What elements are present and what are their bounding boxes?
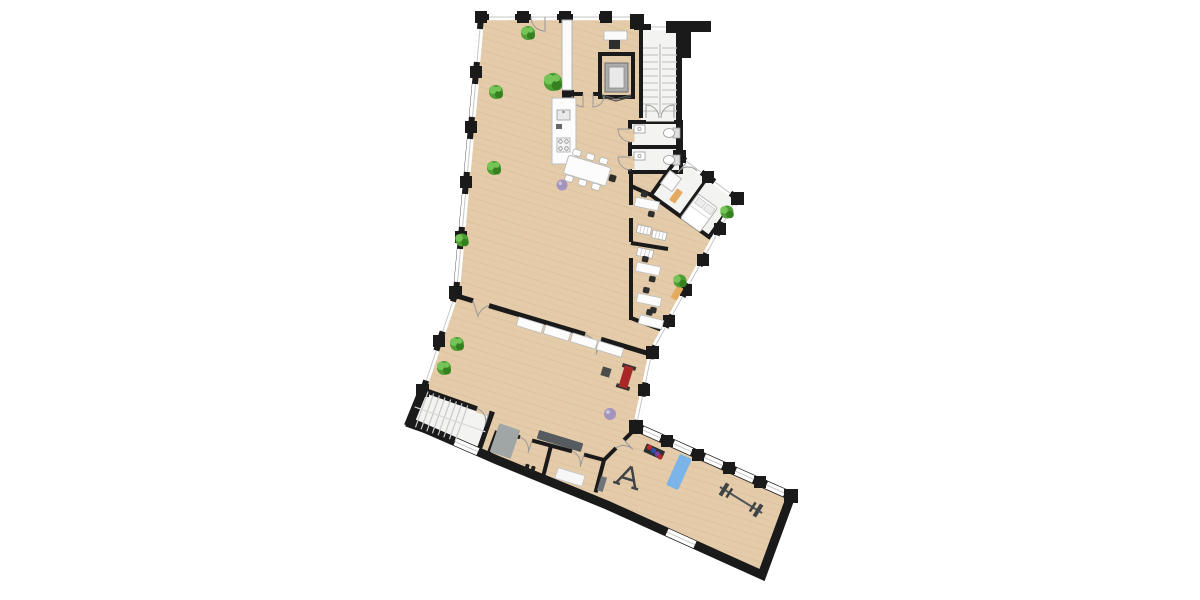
plant-icon	[450, 337, 464, 351]
exercise-ball	[604, 408, 616, 420]
exercise-ball	[557, 180, 568, 191]
floorplan-page	[0, 0, 1200, 600]
printer	[609, 40, 620, 49]
plant-icon	[489, 85, 503, 99]
glass-partition	[562, 20, 572, 90]
kitchen-appliance	[556, 124, 562, 129]
toilet-icon	[664, 128, 681, 138]
sink-icon	[634, 125, 645, 133]
plant-icon	[544, 73, 562, 91]
plant-icon	[487, 161, 501, 175]
sink-icon	[634, 152, 645, 160]
credenza	[604, 31, 627, 40]
toilet-icon	[664, 155, 681, 165]
elevator-car-inner	[609, 67, 624, 88]
plant-icon	[437, 361, 451, 375]
floor-plan-canvas	[0, 0, 1200, 600]
plant-icon	[521, 26, 535, 40]
